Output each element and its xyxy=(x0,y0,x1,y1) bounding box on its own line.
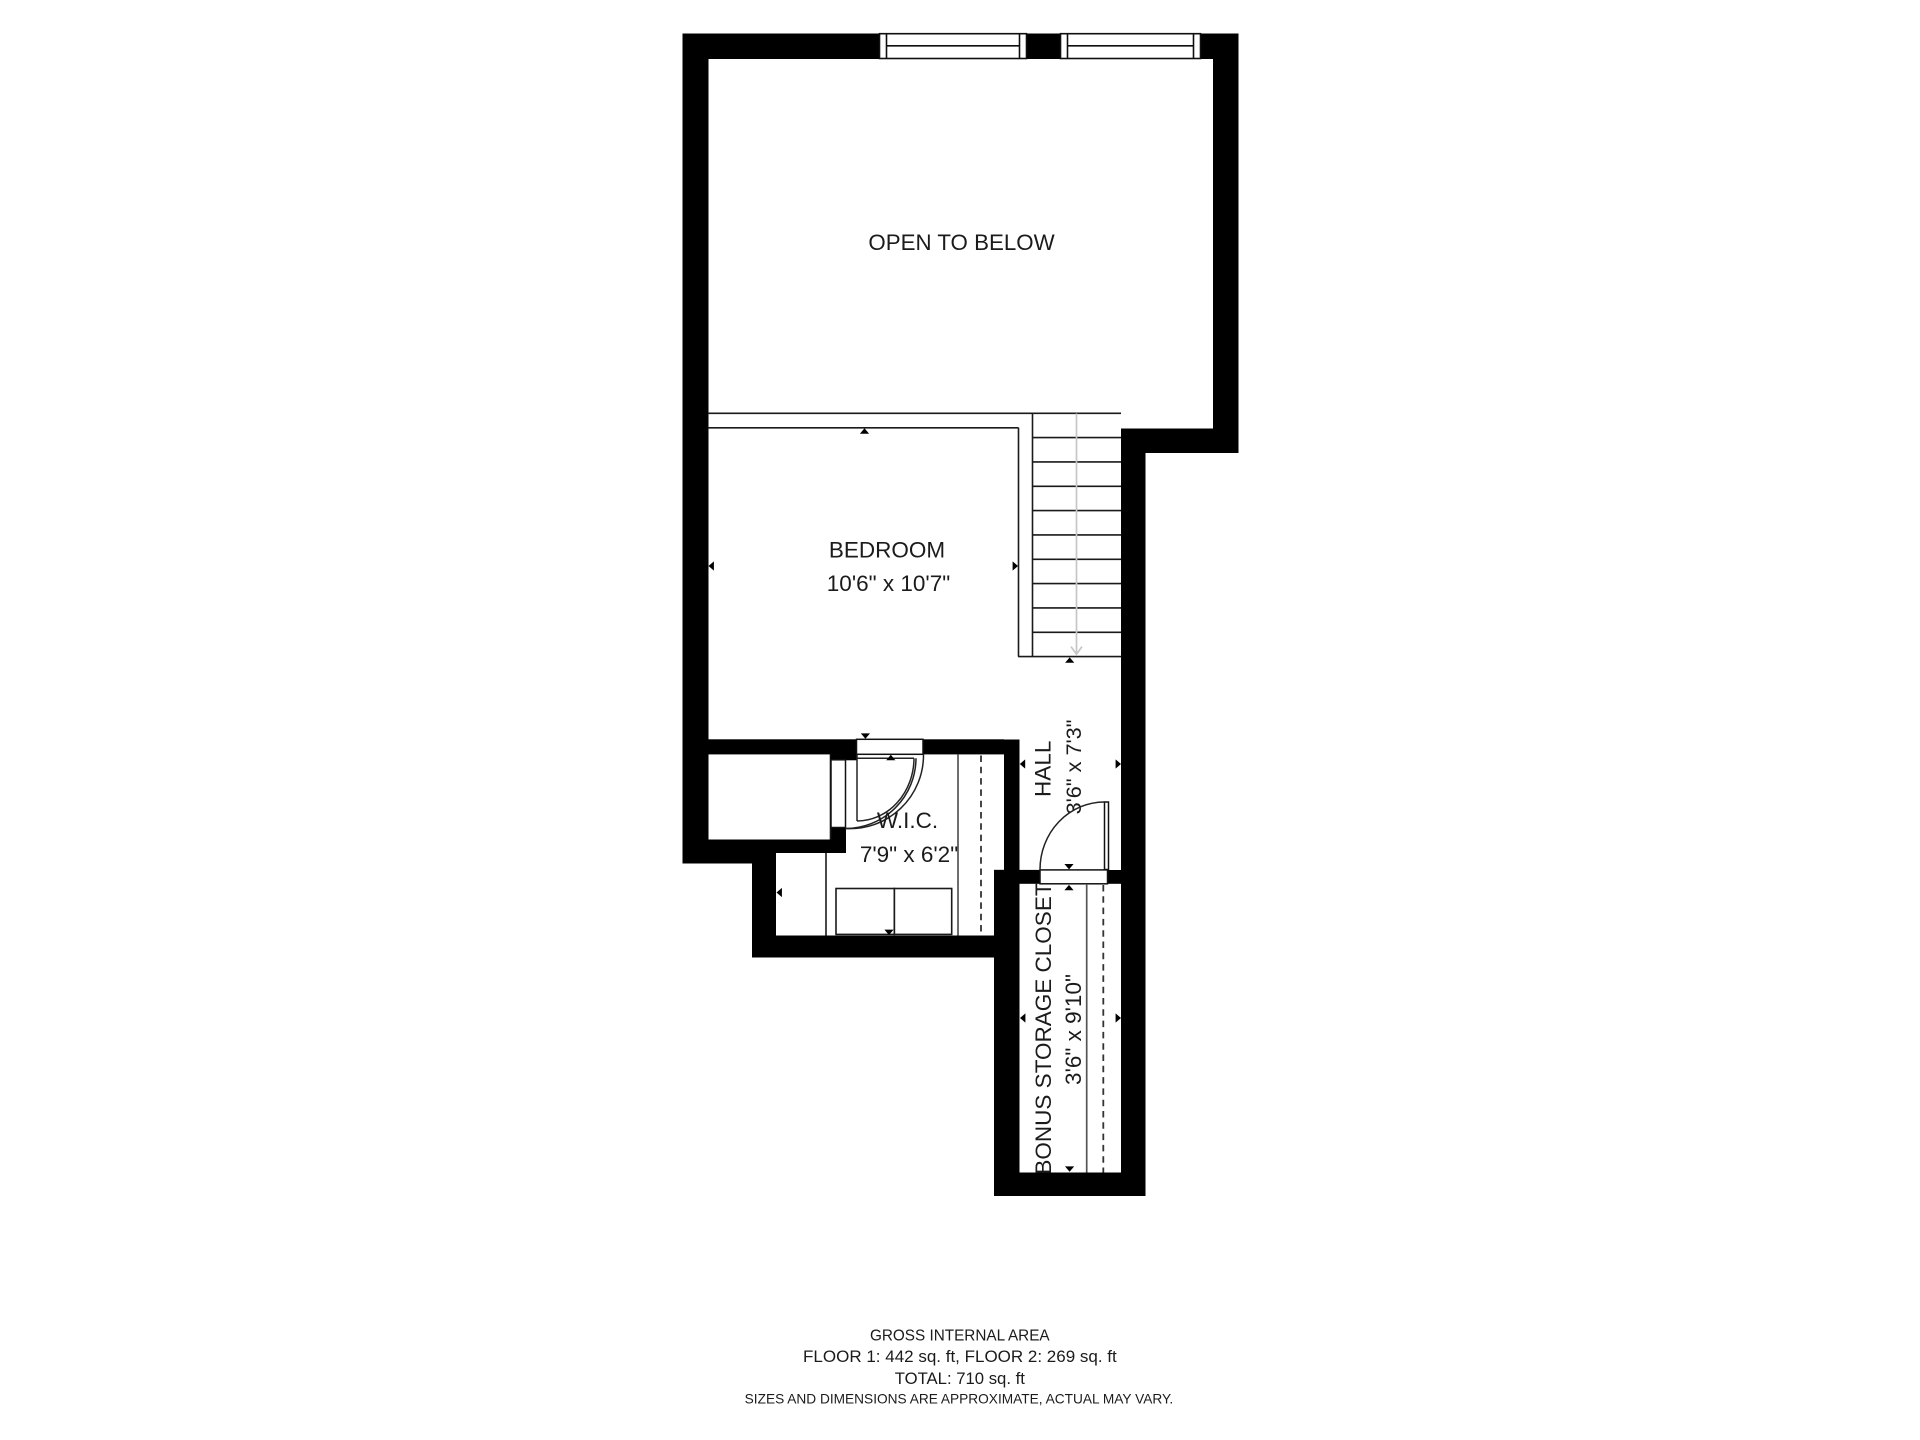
svg-text:TOTAL: 710 sq. ft: TOTAL: 710 sq. ft xyxy=(895,1369,1026,1388)
svg-text:HALL: HALL xyxy=(1031,741,1056,797)
svg-text:3'6" x 9'10": 3'6" x 9'10" xyxy=(1061,974,1086,1085)
svg-text:OPEN TO BELOW: OPEN TO BELOW xyxy=(868,230,1054,255)
svg-text:BONUS STORAGE CLOSET: BONUS STORAGE CLOSET xyxy=(1031,882,1056,1174)
svg-text:SIZES AND DIMENSIONS ARE APPRO: SIZES AND DIMENSIONS ARE APPROXIMATE, AC… xyxy=(745,1392,1173,1407)
svg-text:10'6" x 10'7": 10'6" x 10'7" xyxy=(827,571,950,596)
svg-text:7'9" x 6'2": 7'9" x 6'2" xyxy=(860,842,958,867)
svg-text:BEDROOM: BEDROOM xyxy=(829,538,945,563)
svg-text:W.I.C.: W.I.C. xyxy=(877,808,938,833)
svg-text:3'6" x 7'3": 3'6" x 7'3" xyxy=(1061,720,1086,815)
svg-text:GROSS INTERNAL AREA: GROSS INTERNAL AREA xyxy=(870,1328,1050,1345)
svg-text:FLOOR 1: 442 sq. ft, FLOOR 2:: FLOOR 1: 442 sq. ft, FLOOR 2: 269 sq. ft xyxy=(803,1347,1117,1366)
